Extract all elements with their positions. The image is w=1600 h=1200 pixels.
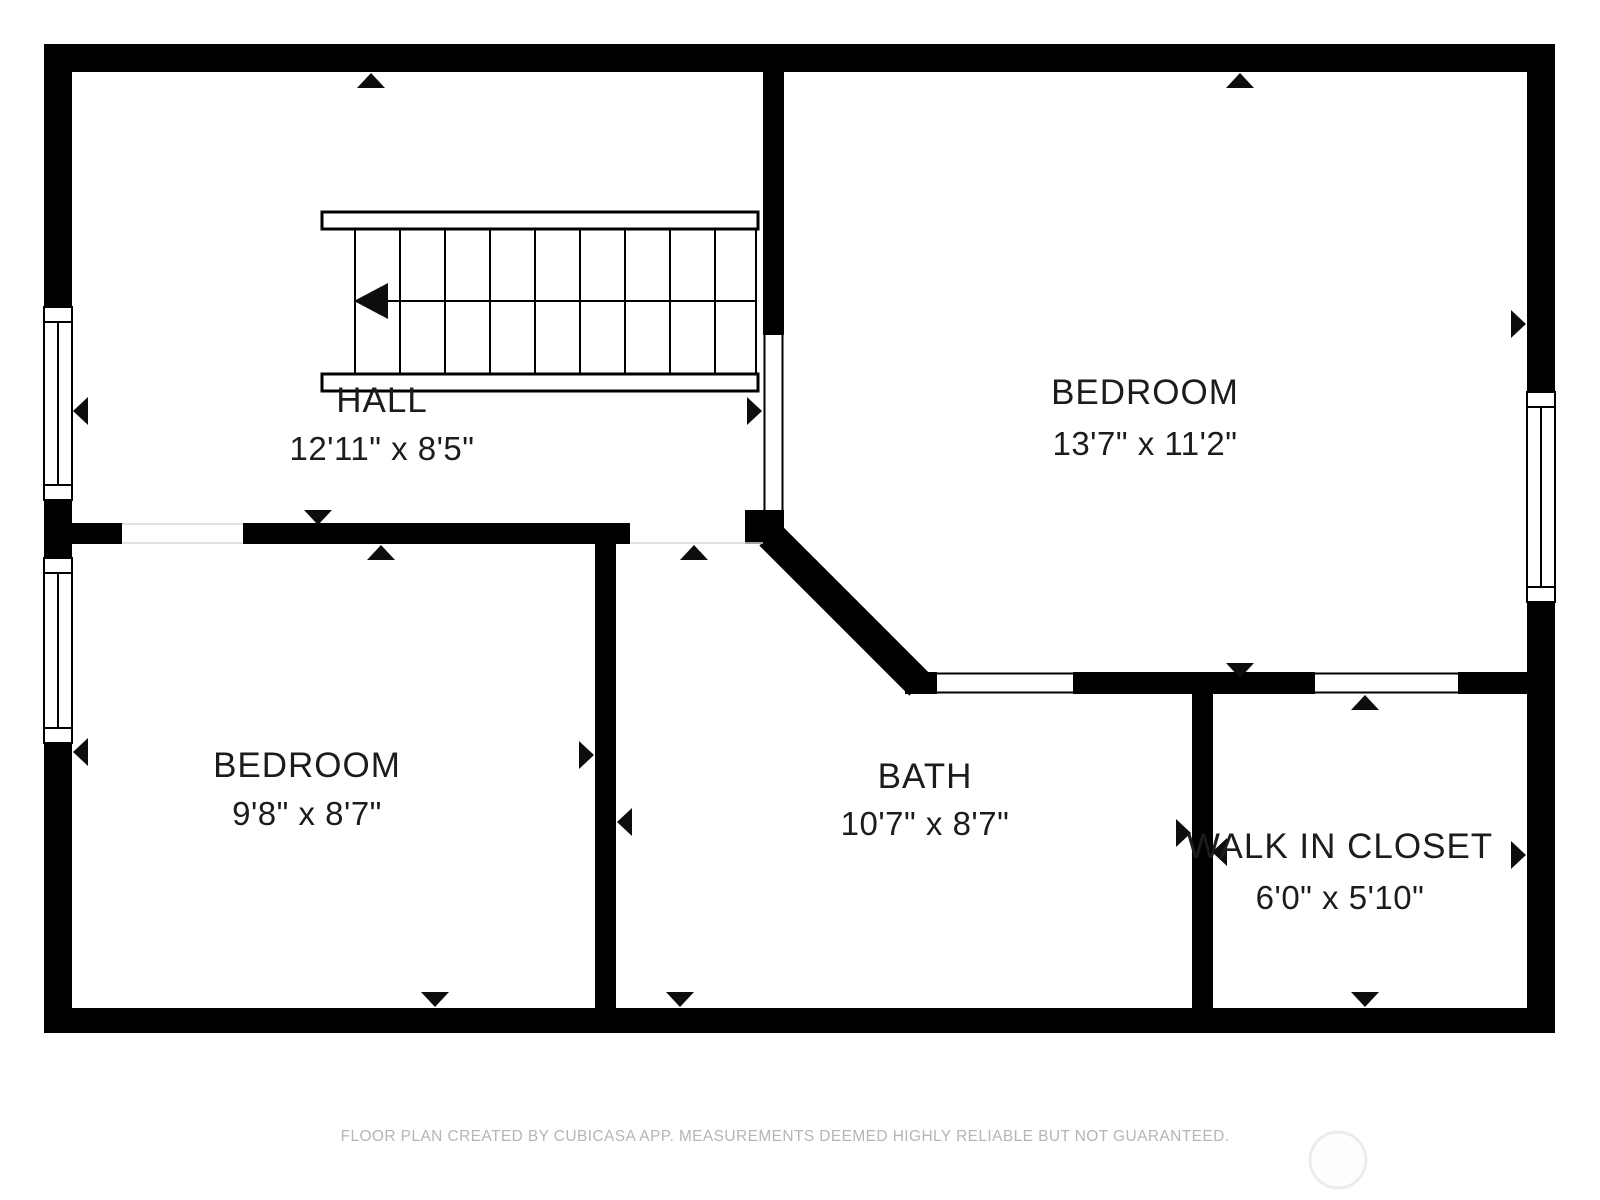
exterior-wall-left	[44, 44, 72, 1033]
wall-bedroom-bath-divider	[595, 544, 616, 1008]
window-icon	[44, 307, 72, 500]
room-dims-hall: 12'11" x 8'5"	[289, 430, 474, 467]
arrow-down-icon	[421, 992, 449, 1007]
arrow-up-icon	[1351, 695, 1379, 710]
wall-hall-stub	[72, 523, 122, 544]
arrow-up-icon	[1226, 73, 1254, 88]
doorway-closet	[1315, 674, 1458, 693]
room-label-bedroom-lower: BEDROOM	[213, 746, 401, 785]
interior-walls	[72, 72, 1527, 1008]
room-label-hall: HALL	[336, 381, 428, 420]
arrow-right-icon	[579, 741, 594, 769]
wall-bedroom-left	[763, 72, 784, 335]
footer: FLOOR PLAN CREATED BY CUBICASA APP. MEAS…	[341, 1128, 1366, 1188]
wall-end-block	[905, 672, 937, 694]
arrow-down-icon	[666, 992, 694, 1007]
arrow-left-icon	[73, 397, 88, 425]
room-dims-bedroom-upper: 13'7" x 11'2"	[1052, 425, 1237, 462]
wall-hall-bedroom	[243, 523, 630, 544]
room-dims-bath: 10'7" x 8'7"	[841, 805, 1010, 842]
footer-disclaimer: FLOOR PLAN CREATED BY CUBICASA APP. MEAS…	[341, 1128, 1230, 1145]
watermark-circle-icon	[1310, 1132, 1366, 1188]
arrow-right-icon	[1511, 310, 1526, 338]
arrow-right-icon	[1511, 841, 1526, 869]
window-icon	[44, 558, 72, 743]
floor-plan-drawing: HALL 12'11" x 8'5" BEDROOM 13'7" x 11'2"…	[0, 0, 1600, 1200]
stair-stringer-top	[322, 212, 758, 229]
arrow-left-icon	[617, 808, 632, 836]
room-labels: HALL 12'11" x 8'5" BEDROOM 13'7" x 11'2"…	[213, 373, 1493, 916]
arrow-left-icon	[73, 738, 88, 766]
arrow-down-icon	[304, 510, 332, 525]
arrow-up-icon	[367, 545, 395, 560]
window-icon	[1527, 392, 1555, 602]
room-label-walk-in-closet: WALK IN CLOSET	[1187, 827, 1493, 866]
room-dims-walk-in-closet: 6'0" x 5'10"	[1256, 879, 1425, 916]
arrow-up-icon	[680, 545, 708, 560]
arrow-right-icon	[747, 397, 762, 425]
wall-bedroom-bottom-a	[1073, 672, 1315, 694]
wall-diagonal	[770, 535, 920, 685]
wall-bedroom-bottom-b	[1458, 672, 1527, 694]
exterior-wall-bottom	[44, 1008, 1555, 1033]
arrow-up-icon	[357, 73, 385, 88]
exterior-wall-top	[44, 44, 1555, 72]
staircase	[322, 212, 758, 391]
arrow-down-icon	[1351, 992, 1379, 1007]
floor-plan-page: HALL 12'11" x 8'5" BEDROOM 13'7" x 11'2"…	[0, 0, 1600, 1200]
room-label-bath: BATH	[878, 757, 973, 796]
doorway-bath	[937, 674, 1073, 693]
doorway-bedroom	[765, 335, 783, 510]
room-label-bedroom-upper: BEDROOM	[1051, 373, 1239, 412]
room-dims-bedroom-lower: 9'8" x 8'7"	[232, 795, 382, 832]
stair-direction-arrow-icon	[354, 283, 756, 319]
